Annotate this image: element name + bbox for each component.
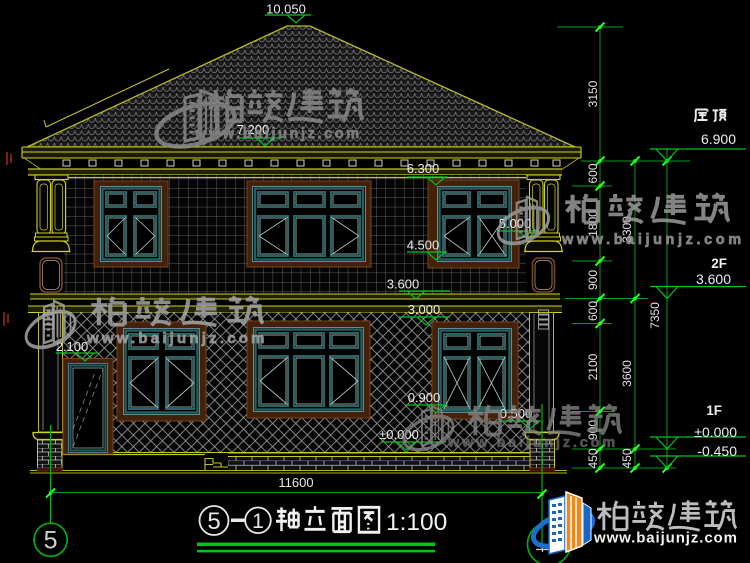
svg-text:-0.450: -0.450 <box>697 443 737 459</box>
svg-text:±0.000: ±0.000 <box>694 424 737 440</box>
svg-text:www.baijunjz.com: www.baijunjz.com <box>194 126 362 142</box>
svg-text:450: 450 <box>620 448 634 468</box>
svg-text:3.000: 3.000 <box>408 302 441 317</box>
svg-text:6.300: 6.300 <box>407 161 440 176</box>
svg-text:7350: 7350 <box>648 302 662 329</box>
svg-text:10.050: 10.050 <box>266 2 306 17</box>
svg-text:2F: 2F <box>711 256 727 271</box>
svg-text:1F: 1F <box>706 403 722 418</box>
svg-text:3150: 3150 <box>586 80 600 107</box>
svg-text:www.baijunjz.com: www.baijunjz.com <box>86 330 268 347</box>
svg-text:3.600: 3.600 <box>696 271 731 287</box>
svg-text:6.900: 6.900 <box>701 131 736 147</box>
svg-text:www.baijunjz.com: www.baijunjz.com <box>447 435 618 451</box>
svg-text:11600: 11600 <box>278 475 313 490</box>
svg-text:5: 5 <box>44 527 58 555</box>
svg-text:600: 600 <box>586 163 600 183</box>
svg-text:5: 5 <box>207 508 220 535</box>
svg-text:900: 900 <box>586 270 600 290</box>
svg-text:±0.000: ±0.000 <box>379 427 419 442</box>
svg-text:3.600: 3.600 <box>387 277 420 292</box>
svg-text:1:100: 1:100 <box>386 509 447 536</box>
svg-text:600: 600 <box>586 301 600 321</box>
svg-text:3600: 3600 <box>620 360 634 387</box>
svg-text:2100: 2100 <box>586 353 600 380</box>
svg-text:www.baijunjz.com: www.baijunjz.com <box>593 530 738 547</box>
svg-text:0.500: 0.500 <box>500 406 533 421</box>
svg-text:www.baijunjz.com: www.baijunjz.com <box>561 232 745 248</box>
svg-text:450: 450 <box>586 448 600 468</box>
svg-text:0.900: 0.900 <box>408 390 441 405</box>
svg-text:1: 1 <box>252 510 264 533</box>
svg-text:4.500: 4.500 <box>407 238 440 253</box>
